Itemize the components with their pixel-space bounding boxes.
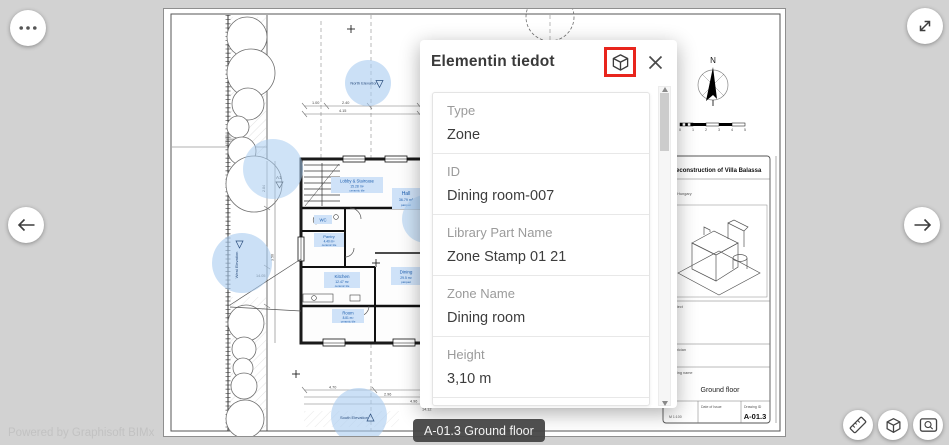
svg-text:1: 1 — [692, 128, 694, 132]
svg-text:4.96: 4.96 — [410, 400, 417, 404]
north-elevation-marker[interactable]: North Elevation — [345, 60, 391, 106]
arrow-right-icon — [913, 218, 932, 232]
scrollbar-down-arrow[interactable] — [659, 398, 670, 408]
svg-text:South Elevation: South Elevation — [340, 415, 368, 420]
info-field: Library Part Name Zone Stamp 01 21 — [433, 215, 649, 276]
svg-text:West Elevation: West Elevation — [234, 252, 239, 279]
zone-stamp-dining: Dining 29.5 m² parquet — [391, 267, 422, 285]
field-label: ID — [447, 164, 635, 179]
south-elevation-marker[interactable]: South Elevation — [331, 388, 387, 436]
zone-stamp-kitchen: Kitchen 12.47 m² ceramic tile — [324, 272, 360, 288]
west-elevation-marker[interactable]: West Elevation — [212, 233, 272, 293]
svg-text:parquet: parquet — [401, 280, 411, 284]
svg-text:Room[interactable]: Room — [342, 311, 354, 316]
svg-text:ceramic tile: ceramic tile — [341, 319, 356, 323]
red-highlight-box — [604, 47, 636, 77]
previous-view-button[interactable] — [8, 207, 44, 243]
zone-stamp-lobby: Lobby & Staircase 15.28 m² ceramic tile — [331, 177, 383, 193]
info-field: Height 3,10 m — [433, 337, 649, 398]
svg-text:2.96: 2.96 — [384, 393, 391, 397]
svg-text:2.40: 2.40 — [342, 101, 349, 105]
svg-text:ceramic tile: ceramic tile — [322, 243, 337, 247]
ellipsis-icon — [19, 26, 37, 30]
field-value: Dining room-007 — [447, 188, 635, 204]
close-button[interactable] — [643, 50, 667, 74]
scrollbar-thumb[interactable] — [660, 93, 669, 151]
north-arrow: N — [698, 56, 728, 106]
svg-text:Pantry[interactable]: Pantry — [323, 234, 335, 239]
field-label: Type — [447, 103, 635, 118]
next-view-button[interactable] — [904, 207, 940, 243]
measure-button[interactable] — [843, 410, 873, 440]
more-options-button[interactable] — [10, 10, 46, 46]
svg-text:1.00: 1.00 — [312, 101, 319, 105]
svg-text:14.12: 14.12 — [422, 408, 432, 412]
panel-title: Elementin tiedot — [431, 53, 604, 71]
svg-text:ceramic tile: ceramic tile — [349, 189, 365, 193]
field-label: Height — [447, 347, 635, 362]
cube-icon — [884, 417, 903, 434]
title-block: Reconstruction of Villa Balassa 1986 pes… — [663, 156, 770, 423]
field-value: Zone — [447, 127, 635, 143]
element-info-panel: Elementin tiedot Type Zone ID — [420, 40, 677, 408]
ruler-icon — [848, 415, 868, 435]
cube-icon — [610, 53, 631, 72]
field-label: Zone Name — [447, 286, 635, 301]
svg-text:4: 4 — [731, 128, 733, 132]
svg-text:Hall[interactable]: Hall — [402, 191, 411, 197]
powered-by-label: Powered by Graphisoft BIMx — [8, 427, 154, 439]
svg-text:4.70: 4.70 — [329, 386, 336, 390]
svg-text:A-01.3: A-01.3 — [744, 412, 767, 421]
show-in-3d-button[interactable] — [610, 53, 631, 72]
svg-text:M 1:100: M 1:100 — [669, 415, 682, 419]
info-field: Calculated Area — [433, 398, 649, 406]
info-field: ID Dining room-007 — [433, 154, 649, 215]
sheet-title-tooltip: A-01.3 Ground floor — [413, 419, 545, 442]
zoom-rectangle-icon — [919, 417, 938, 434]
info-field: Type Zone — [433, 93, 649, 154]
field-label: Calculated Area — [447, 403, 635, 406]
properties-list: Type Zone ID Dining room-007 Library Par… — [432, 92, 650, 406]
svg-text:Lobby & Staircase[interactable]: Lobby & Staircase — [340, 179, 375, 184]
svg-text:0: 0 — [679, 128, 681, 132]
panel-header: Elementin tiedot — [420, 40, 677, 84]
bimx-viewer: Lobby & Staircase 15.28 m² ceramic tile … — [0, 0, 949, 445]
model-3d-button[interactable] — [878, 410, 908, 440]
svg-text:2: 2 — [705, 128, 707, 132]
info-field: Zone Name Dining room — [433, 276, 649, 337]
svg-text:Ground floor: Ground floor — [701, 387, 741, 394]
svg-text:5: 5 — [744, 128, 746, 132]
svg-text:Kitchen[interactable]: Kitchen — [334, 274, 350, 279]
expand-icon — [916, 17, 934, 35]
panel-scrollbar[interactable] — [658, 86, 671, 406]
fullscreen-button[interactable] — [907, 8, 943, 44]
arrow-left-icon — [17, 218, 36, 232]
svg-text:Dining[interactable]: Dining — [400, 270, 413, 275]
zone-stamp-wc: WC — [314, 215, 332, 224]
svg-text:ceramic tile: ceramic tile — [335, 284, 350, 288]
svg-text:4.15: 4.15 — [339, 109, 346, 113]
svg-text:N: N — [710, 56, 716, 65]
svg-text:Drawing ID: Drawing ID — [744, 405, 762, 409]
svg-text:Reconstruction of Villa Balass: Reconstruction of Villa Balassa — [672, 168, 762, 174]
highlight-circle — [243, 139, 303, 199]
field-label: Library Part Name — [447, 225, 635, 240]
zoom-window-button[interactable] — [913, 410, 943, 440]
field-value: Zone Stamp 01 21 — [447, 249, 635, 265]
svg-text:WC[interactable]: WC — [320, 218, 327, 223]
scale-bar: 0 1 2 3 4 5 — [679, 123, 746, 132]
field-value: Dining room — [447, 310, 635, 326]
sheet-title-text: A-01.3 Ground floor — [424, 424, 534, 438]
field-value: 3,10 m — [447, 371, 635, 387]
svg-text:North Elevation: North Elevation — [350, 81, 377, 86]
zone-stamp-pantry: Pantry 4.40 m² ceramic tile — [314, 233, 344, 247]
close-icon — [648, 55, 663, 70]
svg-text:3: 3 — [718, 128, 720, 132]
zone-stamp-room: Room 8.81 m² ceramic tile — [332, 309, 364, 323]
svg-text:Date of Issue: Date of Issue — [701, 405, 722, 409]
